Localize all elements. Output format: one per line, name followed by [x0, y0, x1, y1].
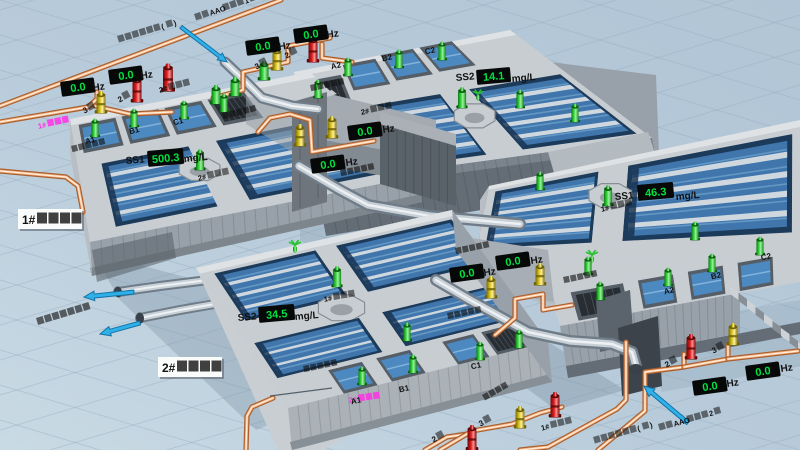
svg-text:mg/L: mg/L	[183, 152, 208, 165]
svg-text:SS1: SS1	[614, 190, 634, 203]
svg-text:Hz: Hz	[780, 362, 794, 375]
svg-text:SS2: SS2	[455, 71, 475, 84]
svg-text:0.0: 0.0	[459, 267, 476, 281]
svg-text:Hz: Hz	[726, 377, 740, 390]
svg-text:0.0: 0.0	[755, 365, 772, 379]
svg-text:14.1: 14.1	[482, 70, 504, 84]
svg-text:46.3: 46.3	[645, 186, 667, 200]
svg-text:34.5: 34.5	[266, 308, 288, 322]
svg-text:0.0: 0.0	[320, 158, 337, 172]
svg-text:SS1: SS1	[125, 154, 145, 167]
svg-text:1#: 1#	[22, 213, 36, 227]
svg-text:SS2: SS2	[237, 311, 257, 324]
svg-text:mg/L: mg/L	[511, 72, 536, 85]
svg-text:0.0: 0.0	[118, 69, 135, 83]
svg-text:2#: 2#	[162, 361, 176, 375]
svg-text:Hz: Hz	[382, 123, 396, 136]
svg-text:0.0: 0.0	[702, 380, 719, 394]
svg-text:0.0: 0.0	[357, 125, 374, 139]
svg-text:Hz: Hz	[92, 81, 106, 94]
svg-text:Hz: Hz	[140, 69, 154, 82]
svg-text:Hz: Hz	[530, 254, 544, 267]
svg-text:0.0: 0.0	[255, 40, 272, 54]
svg-text:0.0: 0.0	[303, 28, 320, 42]
svg-text:Hz: Hz	[326, 28, 340, 41]
svg-text:mg/L: mg/L	[675, 190, 700, 203]
svg-text:mg/L: mg/L	[294, 310, 319, 323]
svg-text:0.0: 0.0	[70, 81, 87, 95]
svg-text:Hz: Hz	[483, 266, 497, 279]
svg-text:500.3: 500.3	[152, 152, 180, 166]
svg-text:0.0: 0.0	[505, 255, 522, 269]
